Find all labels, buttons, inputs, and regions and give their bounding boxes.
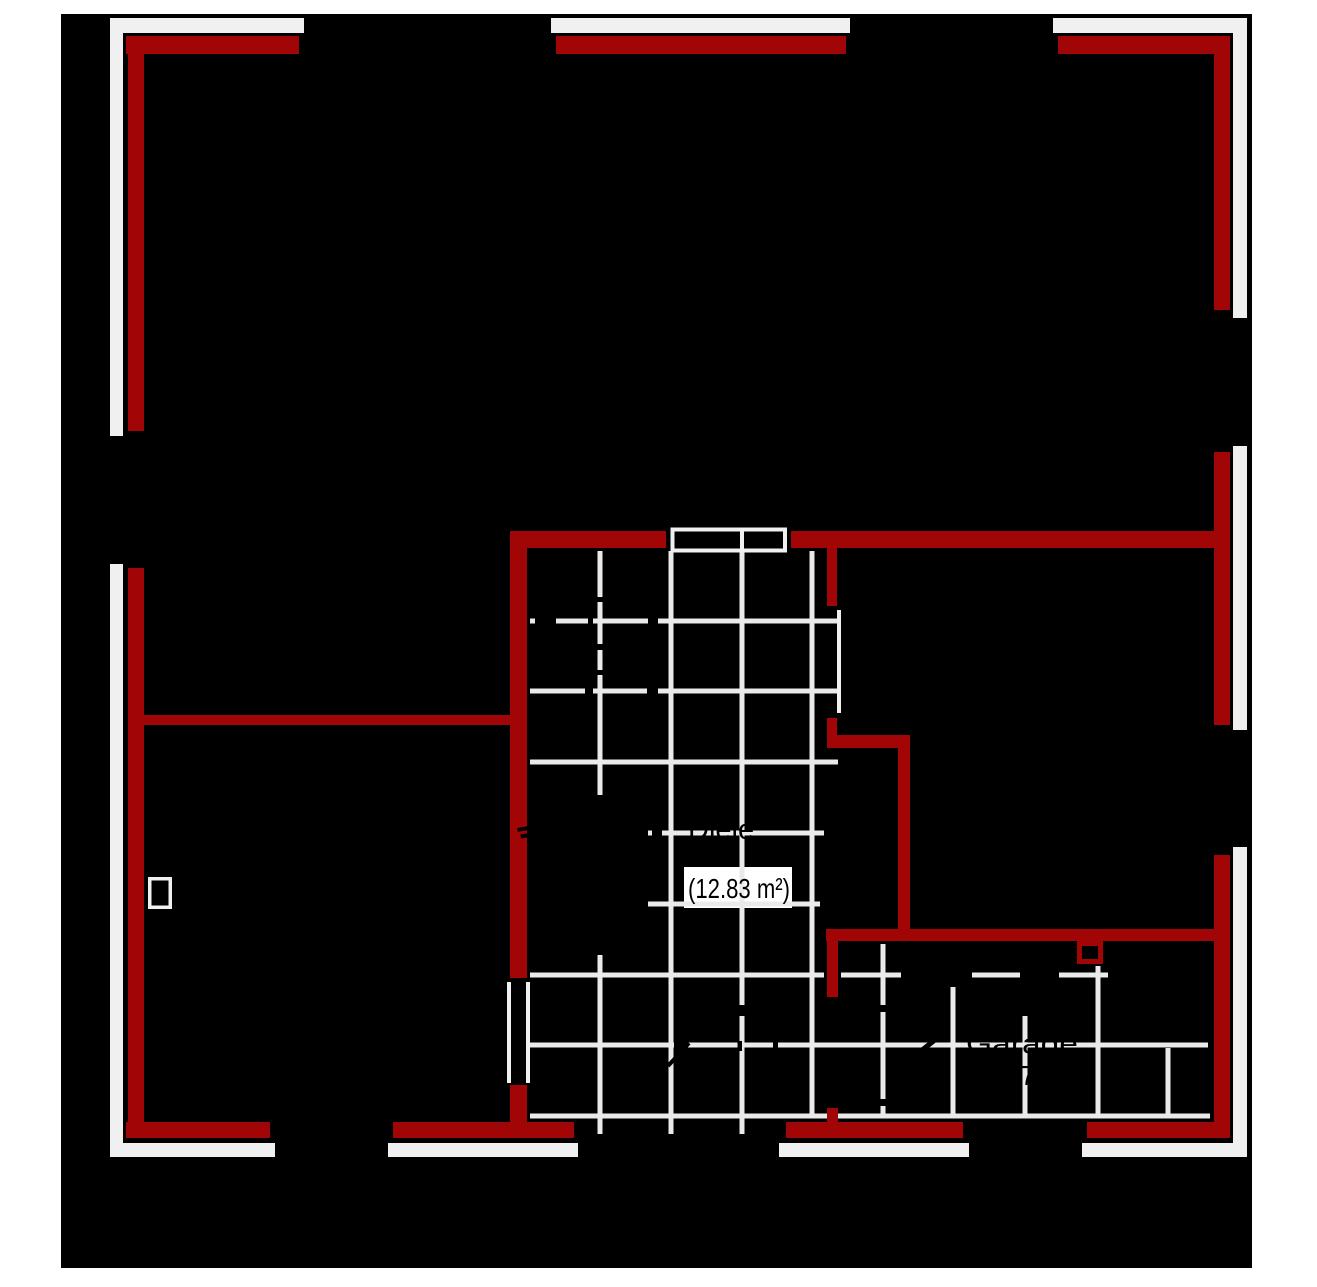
svg-text:Garage: Garage (966, 1028, 1078, 1059)
svg-text:(12.83 m²): (12.83 m²) (688, 873, 790, 904)
svg-text:(35.47 m²): (35.47 m²) (971, 1060, 1073, 1091)
svg-text:Diele: Diele (688, 814, 754, 846)
